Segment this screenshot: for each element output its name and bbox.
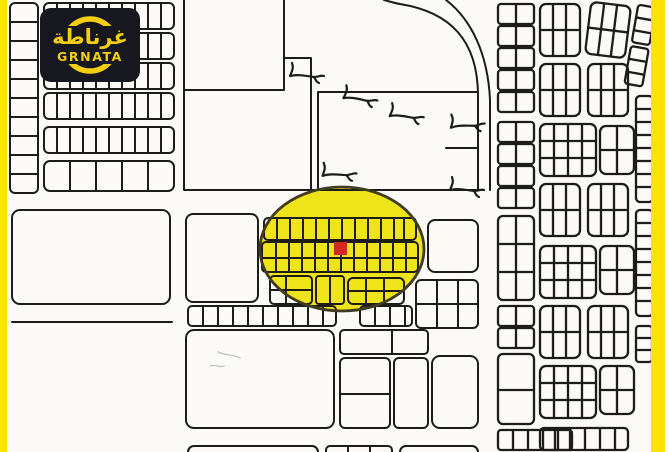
frame-stripe-left xyxy=(0,0,7,452)
logo-arabic-text: غرناطة xyxy=(48,26,132,48)
grnata-logo: غرناطة GRNATA xyxy=(40,8,140,82)
property-location-marker xyxy=(334,242,347,255)
logo-latin-text: GRNATA xyxy=(55,49,125,64)
frame-stripe-right xyxy=(651,0,665,452)
